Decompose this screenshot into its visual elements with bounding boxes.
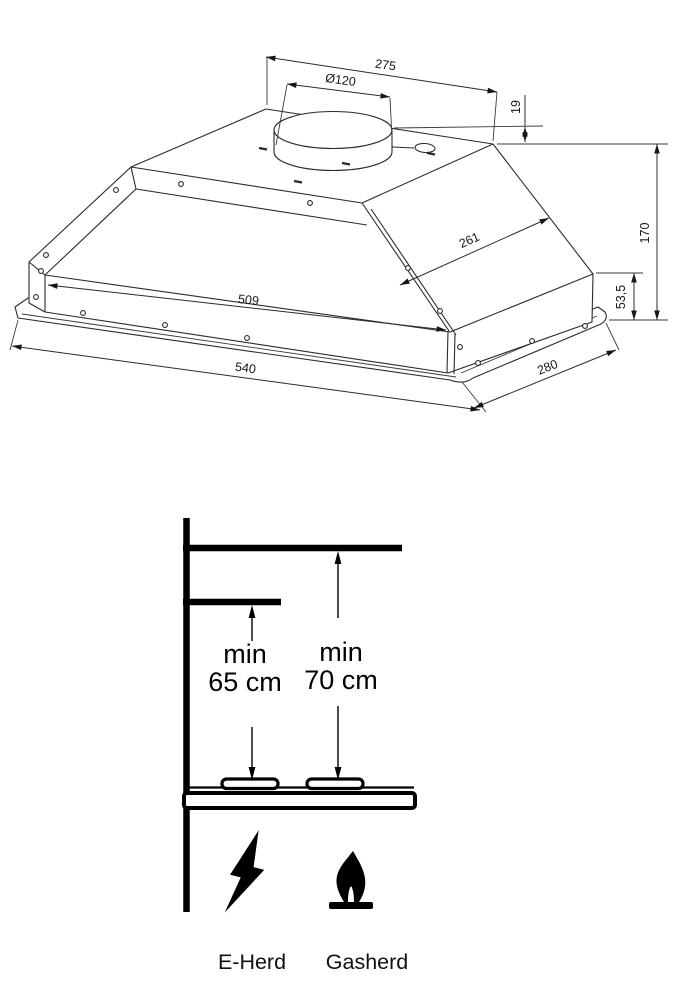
technical-drawing: 275 Ø120 19 170 53,5 261 — [0, 0, 694, 1000]
dim-label-top-width: 275 — [374, 57, 397, 74]
dim-label-box-height: 53,5 — [614, 285, 628, 309]
dim-label-total-height: 170 — [638, 223, 652, 244]
dim-label-overall-width: 540 — [234, 360, 257, 377]
cooktop-counter — [184, 779, 415, 808]
min-electric-word: min — [223, 639, 267, 669]
hood-dimension-drawing: 275 Ø120 19 170 53,5 261 — [10, 57, 668, 412]
dim-label-collar-height: 19 — [509, 100, 523, 114]
page: 275 Ø120 19 170 53,5 261 — [0, 0, 694, 1000]
electric-stove-label: E-Herd — [218, 950, 286, 974]
min-gas-value: 70 cm — [304, 665, 378, 695]
min-gas-word: min — [319, 637, 363, 667]
installation-clearance-drawing: min 65 cm min 70 cm E-Herd Gasherd — [183, 518, 415, 974]
gas-stove-label: Gasherd — [326, 950, 408, 974]
burner-left — [222, 779, 278, 789]
min-electric-value: 65 cm — [208, 667, 282, 697]
lightning-bolt-icon — [221, 826, 273, 919]
gas-flame-icon — [329, 851, 373, 909]
dim-label-inner-width: 509 — [237, 292, 259, 308]
dim-label-duct-diameter: Ø120 — [324, 71, 356, 89]
duct-collar — [274, 112, 392, 171]
burner-right — [307, 779, 363, 789]
